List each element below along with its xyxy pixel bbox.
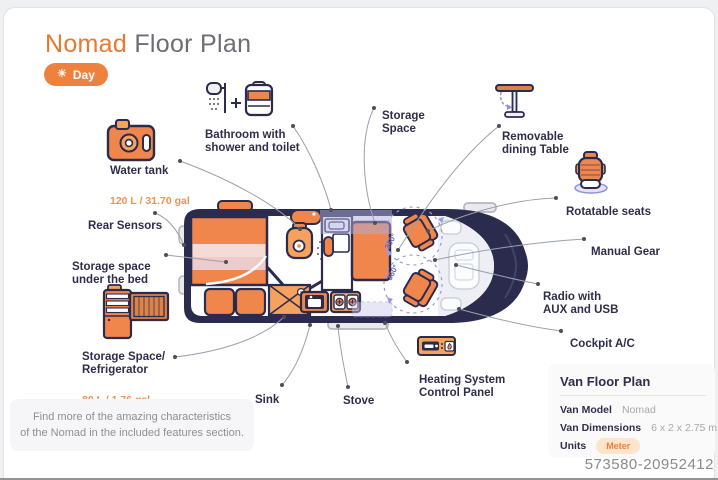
faucet-dot (312, 212, 315, 215)
page-title: Nomad Floor Plan (45, 30, 251, 59)
rotatable-seat-icon (575, 152, 607, 193)
callout-label: Bathroom with shower and toilet (205, 129, 300, 156)
info-row-van-dimensions: Van Dimensions 6 x 2 x 2.75 m (560, 422, 717, 434)
callout-label: Rear Sensors (88, 220, 162, 234)
page-title-rest: Floor Plan (127, 30, 251, 58)
wardrobe-handle (324, 237, 333, 256)
callout-label: Storage Space (382, 110, 425, 137)
divider (560, 395, 706, 396)
toilet-icon (246, 82, 272, 115)
plus-icon (231, 98, 241, 108)
callout-sink: Sink (255, 380, 279, 421)
van-info-title: Van Floor Plan (560, 374, 650, 389)
toilet-drain (297, 244, 301, 248)
callout-bathroom: Bathroom with shower and toilet (205, 115, 300, 169)
bed-cushion-left (205, 289, 234, 315)
heating-system-zone (352, 302, 392, 317)
callout-dining-table: Removable dining Table (502, 117, 569, 171)
callout-rear-sensors: Rear Sensors (88, 206, 162, 247)
callout-stove: Stove (343, 381, 374, 422)
dining-table-icon (496, 85, 533, 117)
overhead-storage-overlay (320, 210, 392, 234)
units-toggle[interactable]: Meter (596, 438, 640, 454)
callout-label: Storage space under the bed (72, 261, 151, 288)
leader-line (282, 325, 310, 385)
features-note: Find more of the amazing characteristics… (10, 399, 254, 451)
leader-line (338, 326, 348, 387)
callout-label: Manual Gear (591, 246, 660, 260)
callout-storage-space: Storage Space (382, 96, 425, 150)
info-label: Van Dimensions (560, 422, 641, 434)
info-label: Van Model (560, 404, 612, 416)
callout-heating-system: Heating System Control Panel (419, 360, 505, 414)
callout-cockpit-ac: Cockpit A/C (570, 324, 635, 365)
callout-label: Storage Space/ Refrigerator (82, 351, 165, 378)
callout-label: Water tank (110, 165, 190, 179)
callout-label: Radio with AUX and USB (543, 291, 618, 318)
callout-label: Sink (255, 394, 279, 408)
info-row-units: Units Meter (560, 438, 640, 454)
callout-manual-gear: Manual Gear (591, 232, 660, 273)
wardrobe-shelf-mid (333, 234, 349, 252)
callout-label: Stove (343, 395, 374, 409)
callout-storage-under-bed: Storage space under the bed (72, 247, 151, 301)
bed-pillow-band-light (193, 244, 266, 257)
callout-rotatable-seats: Rotatable seats (566, 192, 651, 233)
info-value: Nomad (622, 404, 656, 416)
bed-cushion-right (236, 289, 265, 315)
floor-plan-stage: 360° 360° (0, 0, 718, 480)
day-toggle-label: Day (73, 68, 95, 82)
page-title-accent: Nomad (45, 30, 127, 58)
callout-radio: Radio with AUX and USB (543, 277, 618, 331)
info-value: 6 x 2 x 2.75 m (651, 422, 717, 434)
sun-icon: ☀ (57, 69, 67, 80)
bathroom-sink-unit (291, 210, 321, 224)
listing-id: 573580-20952412 (585, 456, 714, 473)
wardrobe-area (320, 210, 392, 290)
leader-line (364, 108, 375, 223)
dashboard-panel-top (441, 221, 461, 234)
info-row-van-model: Van Model Nomad (560, 404, 656, 416)
features-note-text: Find more of the amazing characteristics… (20, 409, 244, 441)
callout-label: Heating System Control Panel (419, 374, 505, 401)
info-label: Units (560, 440, 586, 452)
callout-label: Removable dining Table (502, 131, 569, 158)
leader-line (385, 323, 407, 362)
sink-basin (308, 299, 321, 307)
sink-faucet (310, 296, 313, 299)
callout-label: Cockpit A/C (570, 338, 635, 352)
callout-label: Rotatable seats (566, 206, 651, 220)
day-mode-toggle[interactable]: ☀ Day (44, 63, 108, 86)
heating-control-panel-icon (418, 337, 455, 355)
shower-icon (207, 83, 225, 113)
